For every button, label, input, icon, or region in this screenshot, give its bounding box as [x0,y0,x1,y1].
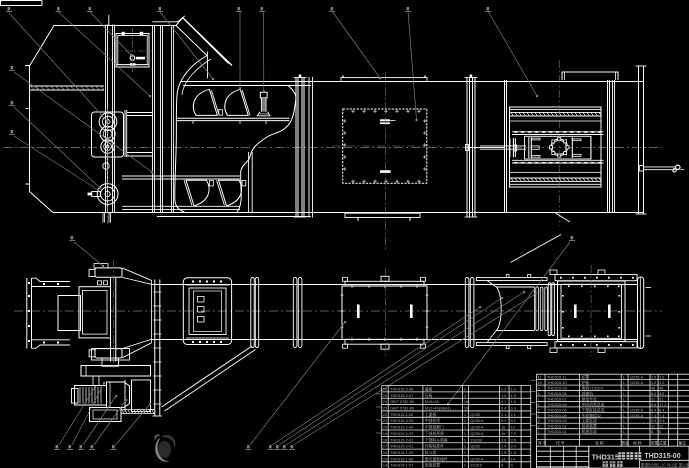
svg-text:1.2: 1.2 [651,381,656,385]
svg-text:数量: 数量 [622,441,630,446]
svg-text:THD315-1-08: THD315-1-08 [390,457,413,461]
svg-text:21: 21 [383,419,387,423]
svg-text:重量比例1:10 共1张 第1张: 重量比例1:10 共1张 第1张 [641,461,689,468]
svg-text:1.2: 1.2 [501,387,506,391]
svg-text:51: 51 [659,397,663,401]
svg-text:1: 1 [623,392,625,396]
svg-text:代 号: 代 号 [556,441,565,446]
svg-text:22: 22 [383,413,387,417]
svg-text:THD315-2-02: THD315-2-02 [390,438,413,442]
svg-text:中部观察门: 中部观察门 [425,425,444,430]
svg-text:1: 1 [464,419,466,423]
svg-text:4.8: 4.8 [659,392,664,396]
svg-text:张紧装置: 张紧装置 [582,424,597,429]
svg-text:THD315-2-04: THD315-2-04 [390,426,413,430]
svg-text:51: 51 [651,397,655,401]
svg-text:1: 1 [464,426,466,430]
svg-text:THD315-00: THD315-00 [644,453,680,460]
svg-text:20: 20 [383,426,387,430]
svg-text:24: 24 [383,400,387,404]
svg-text:9.4: 9.4 [651,419,656,423]
svg-text:THD315-06: THD315-06 [547,403,567,407]
svg-text:2.4: 2.4 [511,445,516,449]
svg-text:1: 1 [623,430,625,434]
svg-text:5: 5 [538,408,540,412]
svg-text:Q235-A: Q235-A [470,426,484,430]
svg-text:THD315-2-05: THD315-2-05 [390,419,413,423]
svg-text:M16×45: M16×45 [425,400,439,404]
svg-text:1: 1 [464,457,466,461]
svg-text:15: 15 [383,457,387,461]
svg-text:1: 1 [464,438,466,442]
svg-text:12: 12 [651,425,655,429]
svg-text:2.4: 2.4 [501,445,506,449]
svg-text:THD315-2-07: THD315-2-07 [390,394,413,398]
svg-text:14: 14 [501,457,505,461]
svg-text:0.1: 0.1 [501,400,506,404]
svg-text:6.4: 6.4 [651,392,656,396]
svg-text:上部区段: 上部区段 [582,418,597,423]
svg-text:电机Y132S4: 电机Y132S4 [582,386,603,391]
svg-text:1.5: 1.5 [511,451,516,455]
svg-text:张紧装置: 张紧装置 [425,463,440,468]
svg-text:Q235-A: Q235-A [630,414,644,418]
svg-text:17: 17 [383,445,387,449]
svg-text:14: 14 [511,457,515,461]
svg-text:0.4: 0.4 [511,406,516,410]
svg-text:THD315-2-01: THD315-2-01 [390,445,413,449]
svg-text:1: 1 [464,413,466,417]
svg-text:15: 15 [501,432,505,436]
svg-text:10: 10 [501,426,505,430]
svg-text:6: 6 [538,403,540,407]
svg-text:Q235-A: Q235-A [470,432,484,436]
svg-text:9.4: 9.4 [659,419,664,423]
svg-text:1.2: 1.2 [511,387,516,391]
svg-text:2.6: 2.6 [659,376,664,380]
svg-text:5.1: 5.1 [511,419,516,423]
svg-text:2.1: 2.1 [511,413,516,417]
svg-text:26: 26 [383,387,387,391]
svg-text:减速机: 减速机 [582,391,594,396]
svg-text:头轮轴组32: 头轮轴组32 [582,413,601,418]
svg-text:48: 48 [651,387,655,391]
svg-text:23: 23 [383,406,387,410]
svg-text:THD315-02: THD315-02 [547,425,567,429]
svg-text:Q235-A: Q235-A [630,381,644,385]
svg-text:2: 2 [538,425,540,429]
svg-text:THD315-07: THD315-07 [547,397,567,401]
svg-text:5.1: 5.1 [501,419,506,423]
svg-text:10: 10 [538,381,542,385]
svg-text:7.4: 7.4 [659,414,664,418]
svg-text:1: 1 [623,403,625,407]
svg-text:3.6: 3.6 [501,438,506,442]
svg-text:THD315-1-09: THD315-1-09 [390,451,413,455]
svg-text:1: 1 [464,432,466,436]
svg-text:单重: 单重 [651,441,659,446]
svg-text:机座总成: 机座总成 [582,429,597,434]
svg-text:1: 1 [623,387,625,391]
svg-text:10: 10 [511,426,515,430]
svg-text:料斗组: 料斗组 [425,450,437,455]
svg-text:1: 1 [623,376,625,380]
svg-text:2.6: 2.6 [651,376,656,380]
svg-text:下部区段总成: 下部区段总成 [582,407,605,412]
svg-text:7.4: 7.4 [651,414,656,418]
svg-text:12: 12 [659,425,663,429]
svg-text:THD315-08: THD315-08 [547,392,567,396]
svg-text:1.6: 1.6 [511,400,516,404]
svg-text:18: 18 [383,438,387,442]
svg-text:材 料: 材 料 [633,441,642,446]
svg-text:THD315-1-07: THD315-1-07 [390,464,413,468]
svg-text:THD315-11: THD315-11 [547,376,566,380]
svg-text:3: 3 [538,419,540,423]
svg-text:备注: 备注 [679,441,687,446]
svg-text:Q235-A: Q235-A [470,419,484,423]
svg-text:名 称: 名 称 [595,441,604,446]
svg-text:压板: 压板 [425,393,433,398]
svg-text:ZG310: ZG310 [470,464,482,468]
svg-text:中部机壳: 中部机壳 [425,418,440,423]
svg-text:GB/T 5782-86: GB/T 5782-86 [390,400,414,404]
svg-text:1: 1 [623,419,625,423]
svg-text:17.2: 17.2 [659,403,666,407]
svg-text:7: 7 [538,397,540,401]
svg-text:8: 8 [538,392,540,396]
svg-text:THD315-03: THD315-03 [547,419,567,423]
svg-text:4: 4 [538,414,540,418]
svg-text:上盖板: 上盖板 [425,412,437,417]
svg-text:48: 48 [659,387,663,391]
svg-text:ZG230: ZG230 [470,438,482,442]
svg-text:16: 16 [464,406,468,410]
svg-text:护罩: 护罩 [582,375,590,380]
svg-text:1: 1 [464,445,466,449]
svg-text:25: 25 [383,394,387,398]
svg-text:1.5: 1.5 [511,394,516,398]
svg-text:总重: 总重 [659,441,667,446]
svg-text:驱动平台: 驱动平台 [582,396,597,401]
svg-text:2: 2 [464,394,466,398]
svg-text:1: 1 [464,451,466,455]
svg-text:THD315-04: THD315-04 [547,414,567,418]
svg-text:1: 1 [623,397,625,401]
svg-text:8.6: 8.6 [651,403,656,407]
svg-text:1: 1 [464,464,466,468]
svg-text:下部机壳焊: 下部机壳焊 [425,431,444,436]
svg-text:16: 16 [383,451,387,455]
svg-text:Q235: Q235 [470,445,479,449]
svg-text:THD315-05: THD315-05 [547,408,567,412]
svg-text:THD315-2-03: THD315-2-03 [390,432,413,436]
svg-text:1.5: 1.5 [501,394,506,398]
svg-text:11: 11 [538,376,542,380]
svg-text:THD315-01: THD315-01 [547,430,567,434]
svg-text:序 号: 序 号 [538,441,547,446]
svg-text:1: 1 [623,425,625,429]
svg-text:2.1: 2.1 [501,413,506,417]
svg-text:8.4: 8.4 [651,408,656,412]
svg-text:护板: 护板 [582,380,590,385]
svg-text:1.5: 1.5 [501,451,506,455]
svg-text:1: 1 [623,381,625,385]
svg-text:THD315-10: THD315-10 [547,381,567,385]
svg-text:19: 19 [383,432,387,436]
svg-text:GB/T 5782-86: GB/T 5782-86 [390,406,414,410]
svg-text:3.6: 3.6 [511,438,516,442]
svg-text:8.4: 8.4 [659,408,664,412]
svg-text:0.4: 0.4 [501,406,506,410]
svg-text:M12×40(GB41): M12×40(GB41) [425,406,452,410]
svg-text:THD315-2-08: THD315-2-08 [390,387,413,391]
svg-text:7.5: 7.5 [511,432,516,436]
svg-text:1.2: 1.2 [659,381,664,385]
svg-text:14: 14 [383,464,387,468]
svg-text:盖板: 盖板 [425,386,433,391]
svg-text:Q235-A: Q235-A [470,457,484,461]
svg-text:4: 4 [511,464,513,468]
svg-text:6: 6 [651,430,653,434]
svg-text:1: 1 [623,414,625,418]
svg-text:2: 2 [464,387,466,391]
svg-text:下部料斗带座: 下部料斗带座 [425,437,448,442]
svg-text:9: 9 [538,387,540,391]
svg-text:1: 1 [623,408,625,412]
svg-text:1: 1 [538,430,540,434]
svg-text:牵引链轮组件: 牵引链轮组件 [425,456,448,461]
svg-text:16: 16 [464,400,468,404]
svg-text:THD315: THD315 [592,453,620,462]
svg-text:6: 6 [659,430,661,434]
svg-text:4: 4 [501,464,503,468]
svg-text:THD315-2-06: THD315-2-06 [390,413,413,417]
svg-text:外购标准件: 外购标准件 [425,444,444,449]
svg-text:中间机壳总成: 中间机壳总成 [582,402,605,407]
svg-text:Q235-A: Q235-A [630,408,644,412]
svg-text:Q235-A: Q235-A [630,376,644,380]
svg-text:Q235: Q235 [470,413,479,417]
svg-text:THD315-09: THD315-09 [547,387,567,391]
